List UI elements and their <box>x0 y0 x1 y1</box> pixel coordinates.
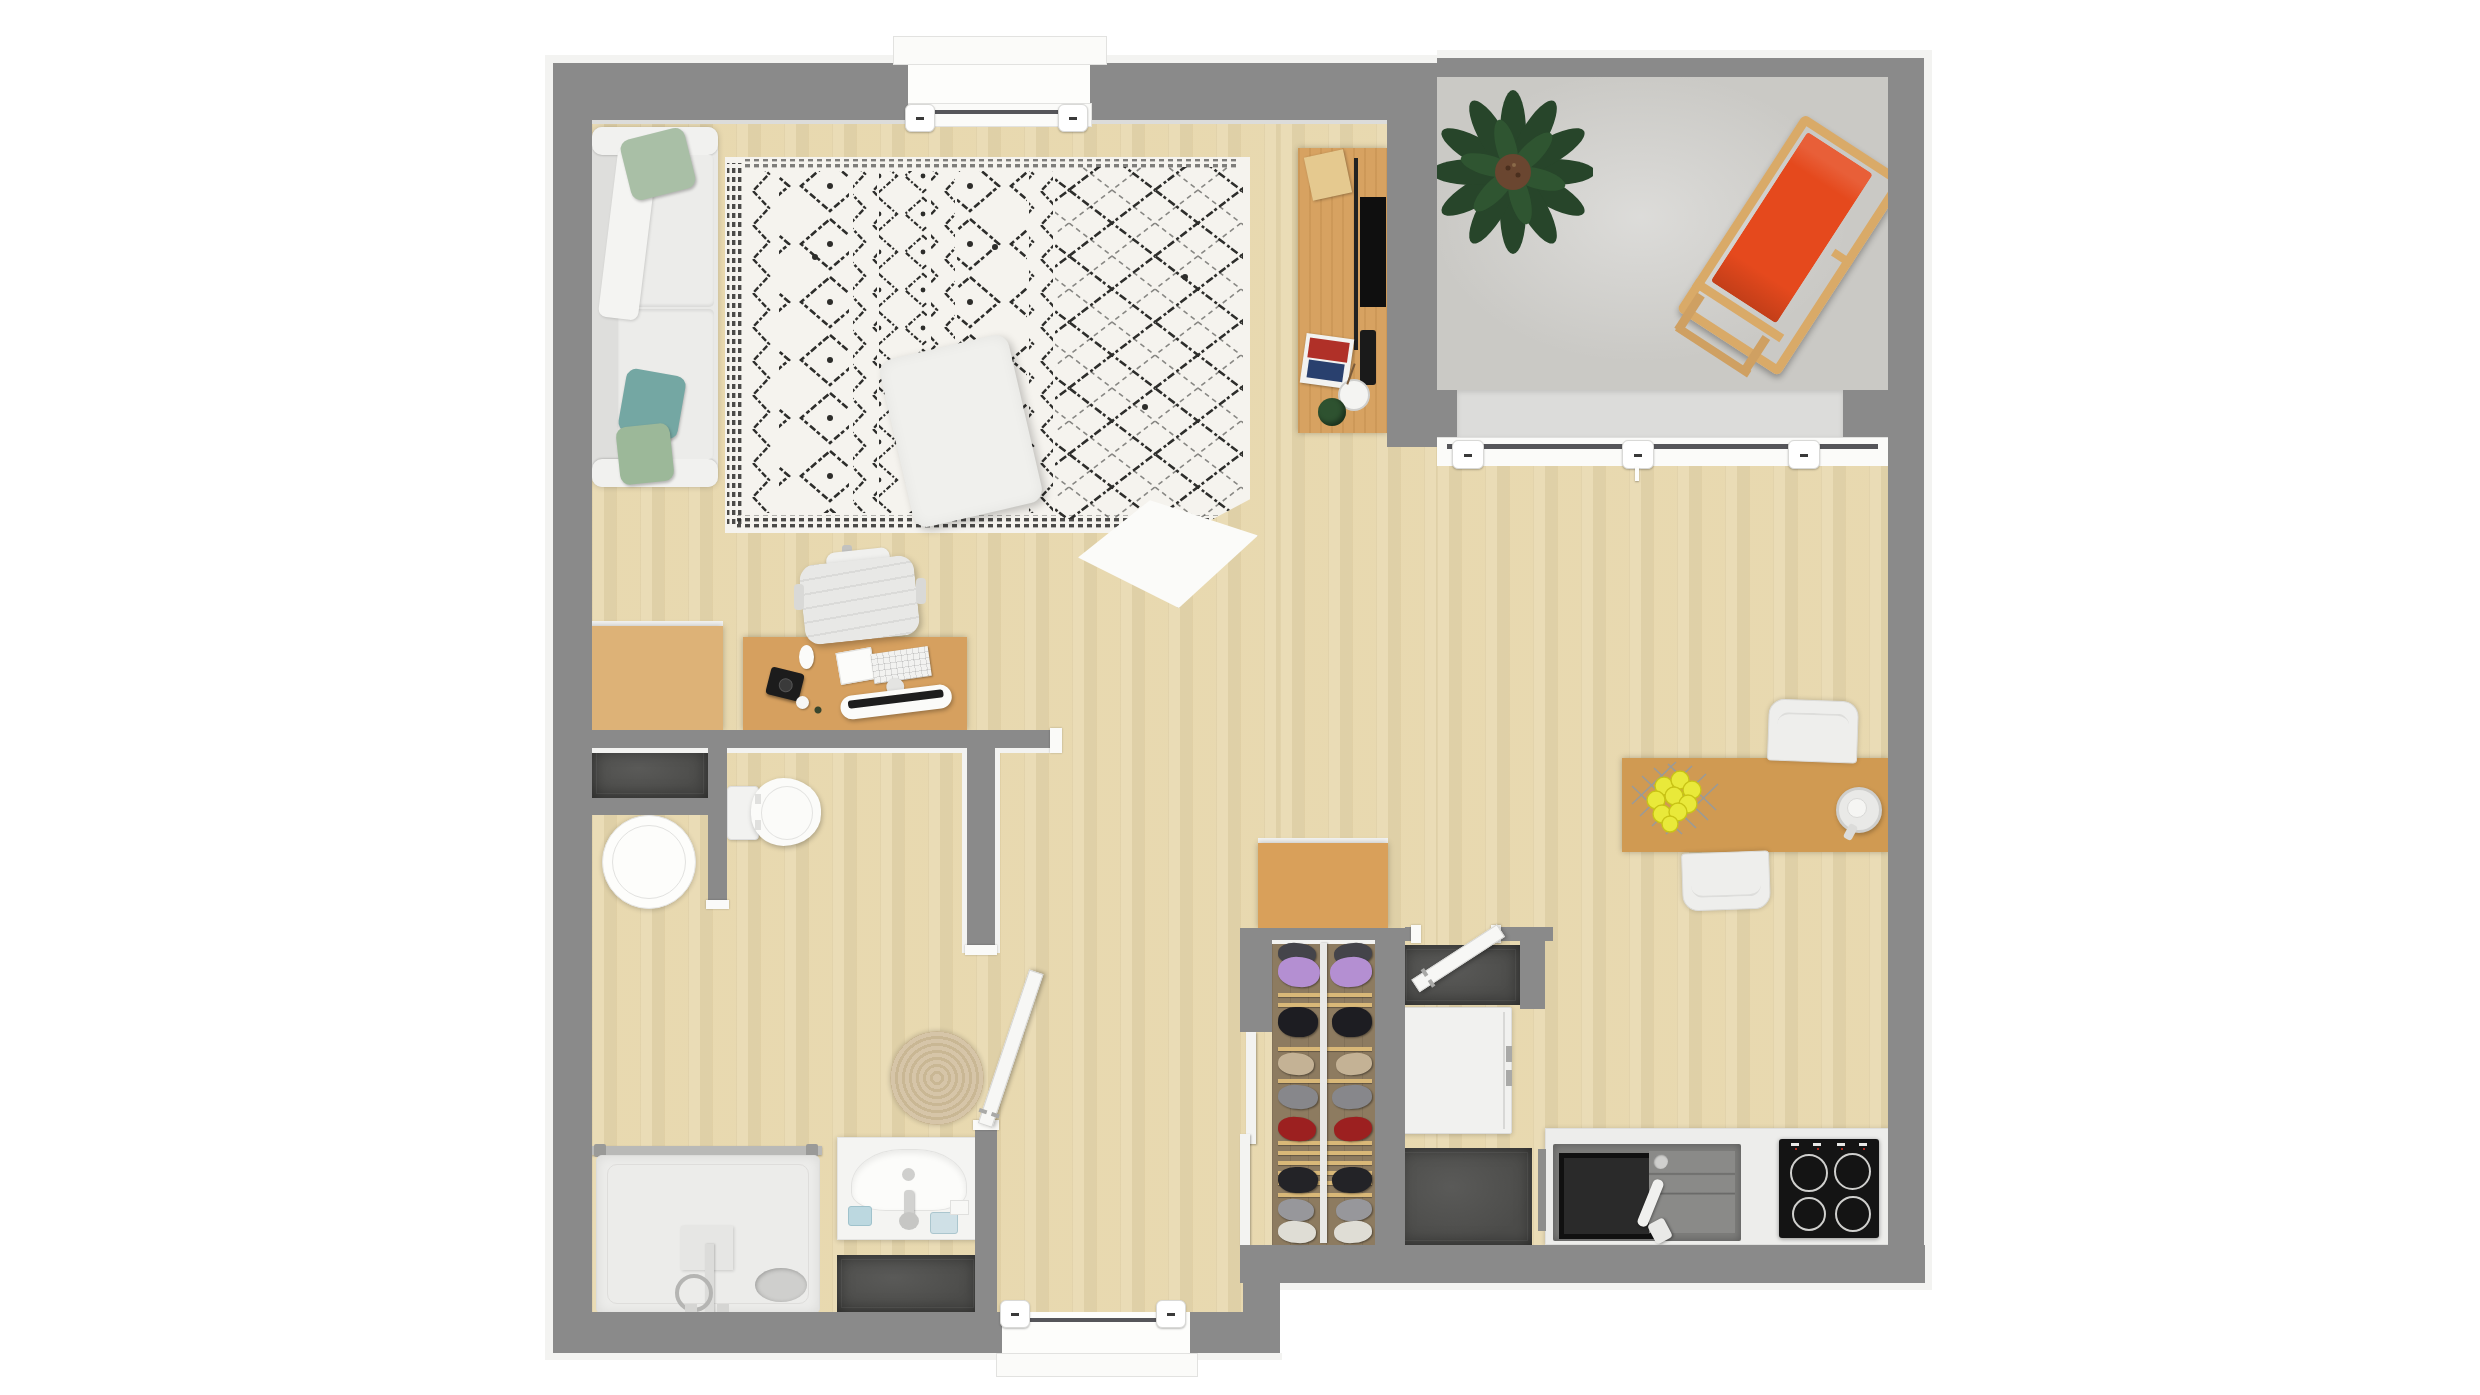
burner <box>1834 1153 1871 1190</box>
laundry-basket <box>602 815 696 909</box>
wall-tv-partition <box>1387 123 1437 447</box>
entry-mat-lower <box>1398 1148 1532 1245</box>
balcony-parapet <box>1437 58 1924 77</box>
vanity-sink <box>837 1137 982 1240</box>
magazine-cover <box>1307 337 1349 362</box>
shoe-pair <box>1277 955 1322 989</box>
jute-rug <box>890 1031 984 1125</box>
dining-chair-bottom <box>1681 850 1771 911</box>
shoe-pair <box>1333 1220 1372 1245</box>
counter-side-shade <box>1538 1149 1546 1231</box>
cooktop <box>1779 1139 1879 1238</box>
tile-border <box>596 752 704 794</box>
shoe-pair <box>1277 1220 1316 1245</box>
window-handle-stem <box>1635 467 1639 481</box>
toilet <box>727 778 827 848</box>
shoe-pair <box>1335 1197 1373 1222</box>
outer-trim-bottom-right <box>1280 1283 1932 1290</box>
toilet-hinge <box>755 820 761 830</box>
chair-armrest <box>916 578 926 604</box>
door-jamb-cap <box>965 945 997 955</box>
bathroom-east-trim-inner <box>962 748 967 953</box>
wall-bathroom-east-upper <box>967 748 995 953</box>
chair-seam <box>1776 712 1849 750</box>
burner <box>1790 1154 1828 1192</box>
sink-drain-dot <box>902 1168 915 1181</box>
wall-toilet-nib <box>708 748 727 908</box>
bathroom-east-trim-outer <box>995 748 1000 953</box>
chair-armrest <box>794 584 804 610</box>
wall-right-upper <box>1888 58 1924 465</box>
appliance-seam <box>1503 1012 1505 1129</box>
window-handle <box>1156 1300 1186 1328</box>
shoe-pair <box>1277 1051 1315 1076</box>
shoe-pair <box>1277 1197 1315 1222</box>
shoe-pair <box>1277 1166 1318 1194</box>
appliance-handle <box>1506 1046 1512 1062</box>
wall-niche-bottom <box>592 798 727 815</box>
dresser <box>1258 838 1388 928</box>
closet-wall-right <box>1375 940 1405 1245</box>
window-handle <box>1452 440 1484 469</box>
bathroom-niche-shelf <box>592 748 708 798</box>
window-handle <box>1058 104 1088 132</box>
entry-wall-east <box>1520 941 1545 1009</box>
bath-tray <box>930 1212 958 1234</box>
dining-chair-top <box>1767 698 1859 763</box>
wall-bottom-left <box>553 1312 1002 1353</box>
shower-glass-rail <box>592 1146 822 1155</box>
faucet-base <box>899 1212 919 1230</box>
desk-chair <box>800 545 920 645</box>
glass-inner <box>1847 798 1867 818</box>
wall-bathroom-north <box>553 730 1060 748</box>
wall-south-right <box>1240 1245 1925 1283</box>
dark-mat-bath <box>837 1255 978 1312</box>
shower-drain <box>755 1268 807 1302</box>
balcony-window-sill <box>1457 390 1843 437</box>
closet-wall-left <box>1240 928 1272 1032</box>
wooden-box <box>1304 149 1352 200</box>
entry-jamb-cap <box>1411 925 1421 943</box>
mouse <box>799 645 814 669</box>
shoe-pair <box>1331 1006 1373 1038</box>
wall-end-cap <box>1050 728 1062 753</box>
shoe-pair <box>1331 1166 1372 1194</box>
washing-machine <box>1398 1007 1512 1134</box>
cooktop-control <box>1859 1143 1867 1146</box>
kitchen-counter <box>1545 1128 1890 1245</box>
shoe-rack <box>1276 941 1372 1245</box>
burner <box>1835 1196 1871 1232</box>
cooktop-control <box>1813 1143 1821 1146</box>
shoe-pair <box>1277 1006 1319 1038</box>
deck-chair-group <box>1684 114 1896 358</box>
closet-door-track <box>1240 1134 1250 1245</box>
toilet-seat-line <box>761 786 813 840</box>
door-handle <box>1421 968 1429 977</box>
potted-plant <box>1433 72 1593 272</box>
floor-plan-canvas <box>0 0 2480 1395</box>
tv-body <box>1360 197 1386 307</box>
cooktop-indicator <box>1817 1148 1819 1150</box>
outer-trim-right <box>1924 50 1932 1283</box>
soap-dish <box>848 1206 872 1226</box>
outer-trim-left <box>545 55 553 1358</box>
wall-top-right-of-window <box>1090 63 1437 123</box>
cooktop-control <box>1837 1143 1845 1146</box>
bath-box <box>950 1200 969 1215</box>
sofa <box>592 127 718 487</box>
cooktop-indicator <box>1863 1148 1865 1150</box>
door-handle <box>979 1108 988 1114</box>
console-plant <box>1318 398 1346 426</box>
wall-bathroom-east-lower <box>975 1122 997 1312</box>
speaker <box>1360 330 1376 385</box>
window-handle <box>1622 440 1654 469</box>
toilet-hinge <box>755 794 761 804</box>
shower-tray <box>596 1155 820 1314</box>
cooktop-indicator <box>1795 1148 1797 1150</box>
desk-plant-sprig <box>806 700 830 720</box>
shoe-pair <box>1277 1084 1319 1111</box>
camera-lens <box>777 677 794 694</box>
notepad <box>835 647 876 685</box>
burner <box>1792 1197 1826 1231</box>
deck-chair <box>1695 116 1885 356</box>
chair-seam <box>1690 862 1761 898</box>
wall-step-connector <box>1243 1283 1280 1353</box>
fruit-basket <box>1630 760 1720 836</box>
shoe-pair <box>1333 1115 1373 1143</box>
tile-border <box>1402 1152 1528 1241</box>
wall-top-left-of-window <box>553 63 908 123</box>
shoe-pair <box>1277 1115 1317 1143</box>
window-handle <box>1788 440 1820 469</box>
balcony-parapet-trim <box>1437 50 1924 58</box>
magazine-cover <box>1307 359 1345 382</box>
hall-window-sill <box>996 1353 1198 1377</box>
glass-cup <box>1836 787 1882 833</box>
appliance-handle <box>1506 1070 1512 1086</box>
sink-fitting-dot <box>1653 1154 1668 1169</box>
living-room-window-frame <box>893 36 1107 65</box>
window-handle <box>1000 1300 1030 1328</box>
wall-left <box>553 63 592 1353</box>
tile-border <box>841 1259 974 1308</box>
wall-right-lower <box>1888 465 1924 1283</box>
nib-end-cap <box>706 900 729 909</box>
tv-screen-edge <box>1354 158 1358 350</box>
shoe-pair <box>1331 1084 1373 1111</box>
cooktop-control <box>1791 1143 1799 1146</box>
shoe-rack-rail <box>1320 943 1327 1243</box>
balcony-window <box>1437 437 1888 466</box>
shoe-pair <box>1335 1051 1373 1076</box>
chair-seat <box>798 554 921 646</box>
tv-console <box>1298 148 1388 433</box>
shower <box>592 1146 822 1314</box>
cooktop-indicator <box>1841 1148 1843 1150</box>
window-handle <box>905 104 935 132</box>
closet-door-track <box>1246 1032 1256 1144</box>
dresser-body <box>1258 843 1388 928</box>
pillow-sage-2 <box>615 422 675 485</box>
kitchen-sink <box>1553 1144 1741 1241</box>
